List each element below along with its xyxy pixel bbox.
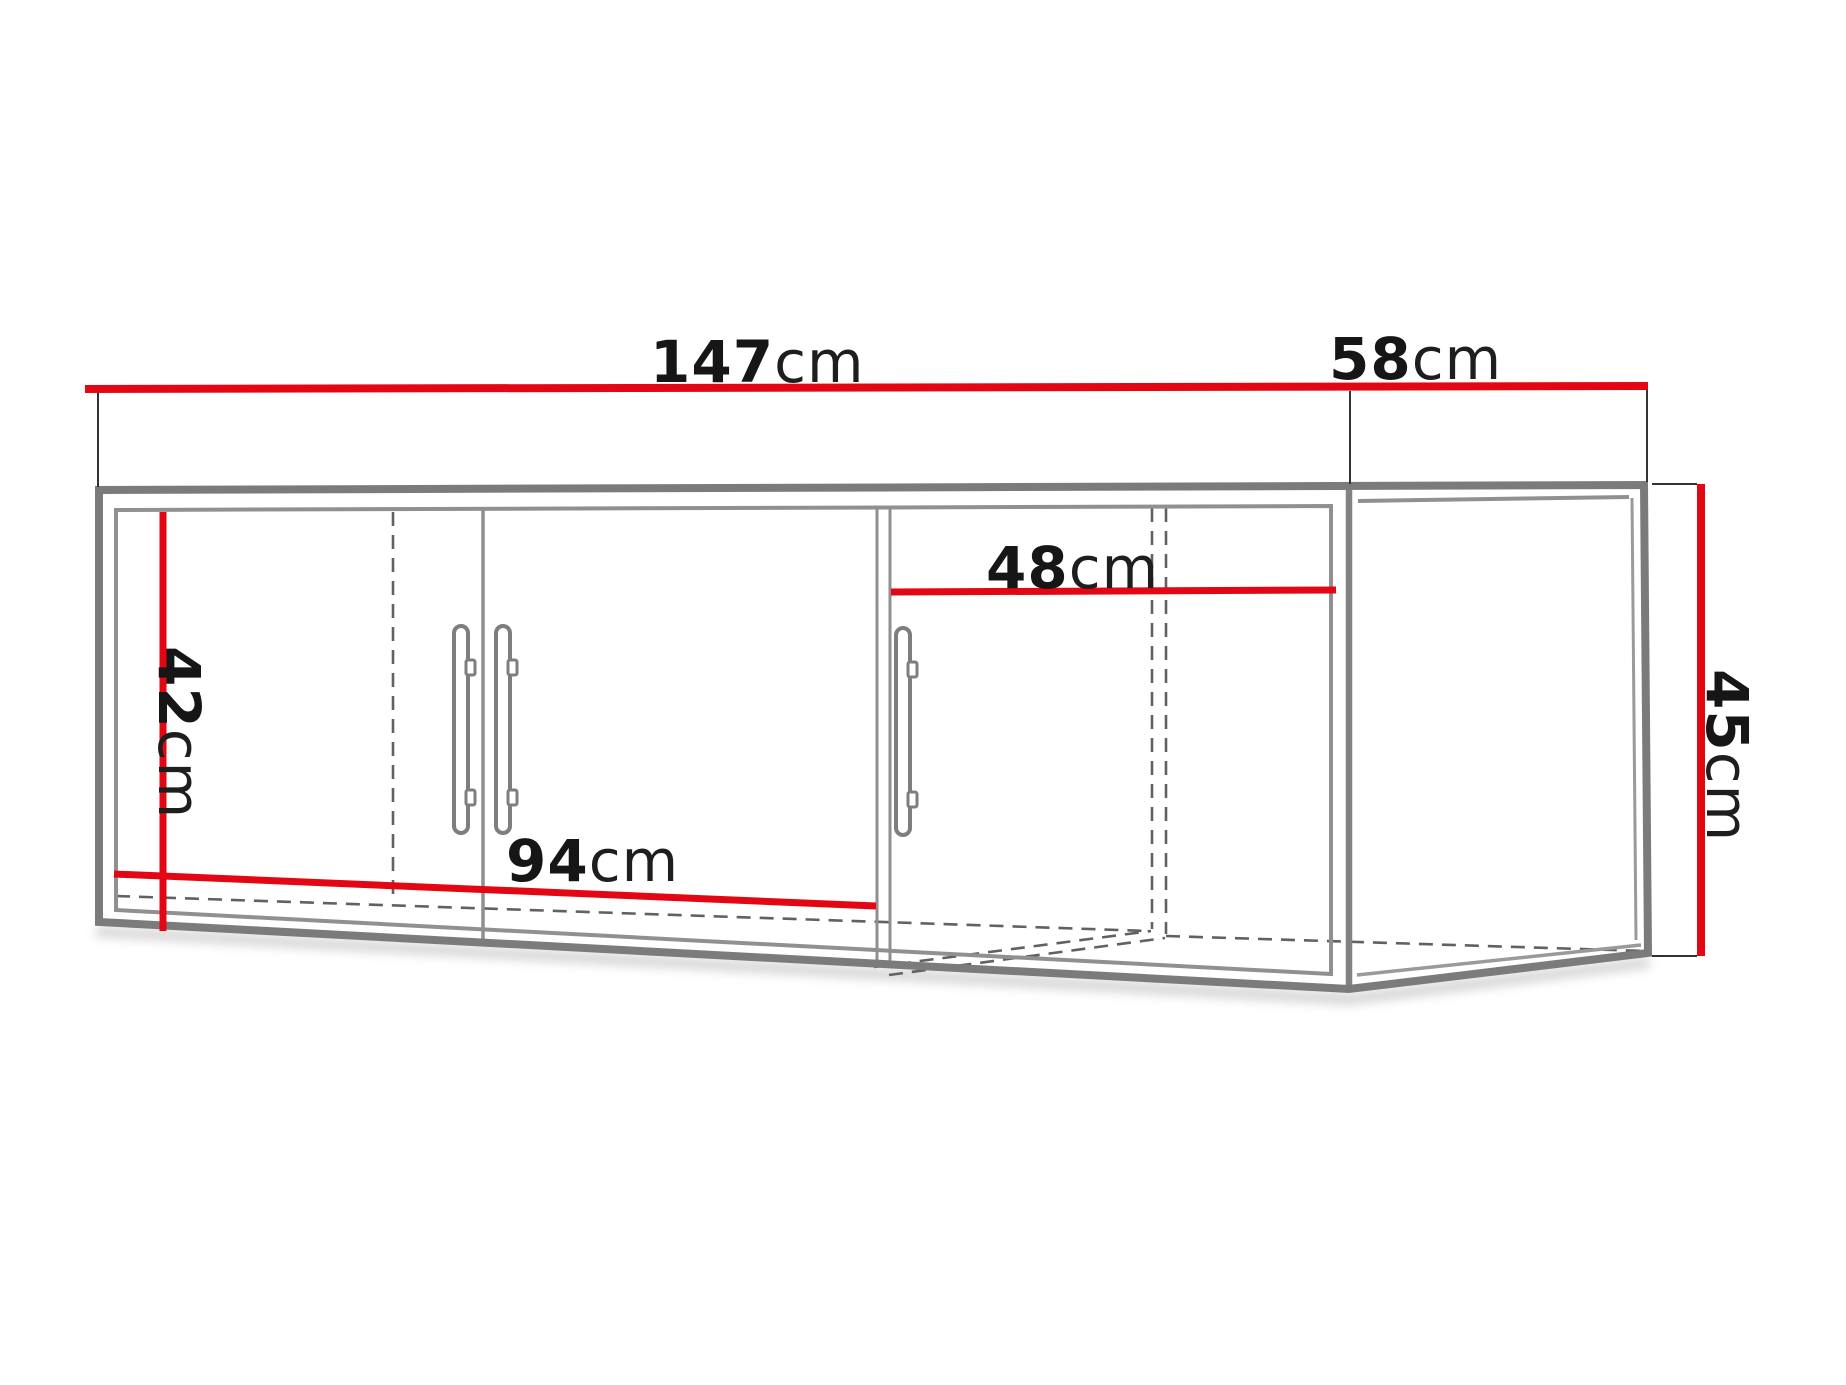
door-handles xyxy=(454,626,917,835)
hidden-back-bottom-right xyxy=(1166,936,1645,951)
right-section-width-label: 48cm xyxy=(986,534,1159,602)
door2-handle-icon xyxy=(496,626,517,833)
hidden-back-bottom-left xyxy=(116,896,1148,931)
left-section-width-label: 94cm xyxy=(506,827,679,895)
dimension-diagram: 147cm 58cm 48cm 94cm 42cm 45cm xyxy=(0,0,1846,1385)
height-label: 45cm xyxy=(1693,669,1761,842)
niche-inner-top-line xyxy=(1358,497,1629,501)
width-label: 147cm xyxy=(650,328,864,396)
cabinet-diagram-svg: 147cm 58cm 48cm 94cm 42cm 45cm xyxy=(0,0,1846,1385)
dimension-lines xyxy=(85,386,1701,956)
cabinet-outer-outline xyxy=(99,485,1648,989)
hidden-lines xyxy=(116,508,1645,975)
dim-line-left-section xyxy=(114,874,876,906)
depth-label: 58cm xyxy=(1329,325,1502,393)
dimension-labels: 147cm 58cm 48cm 94cm 42cm 45cm xyxy=(145,325,1761,895)
door1-handle-icon xyxy=(454,626,475,833)
door3-handle-icon xyxy=(896,628,917,835)
interior-height-label: 42cm xyxy=(145,646,213,819)
cabinet-body xyxy=(99,485,1648,989)
niche-inner-right-line xyxy=(1632,498,1636,940)
